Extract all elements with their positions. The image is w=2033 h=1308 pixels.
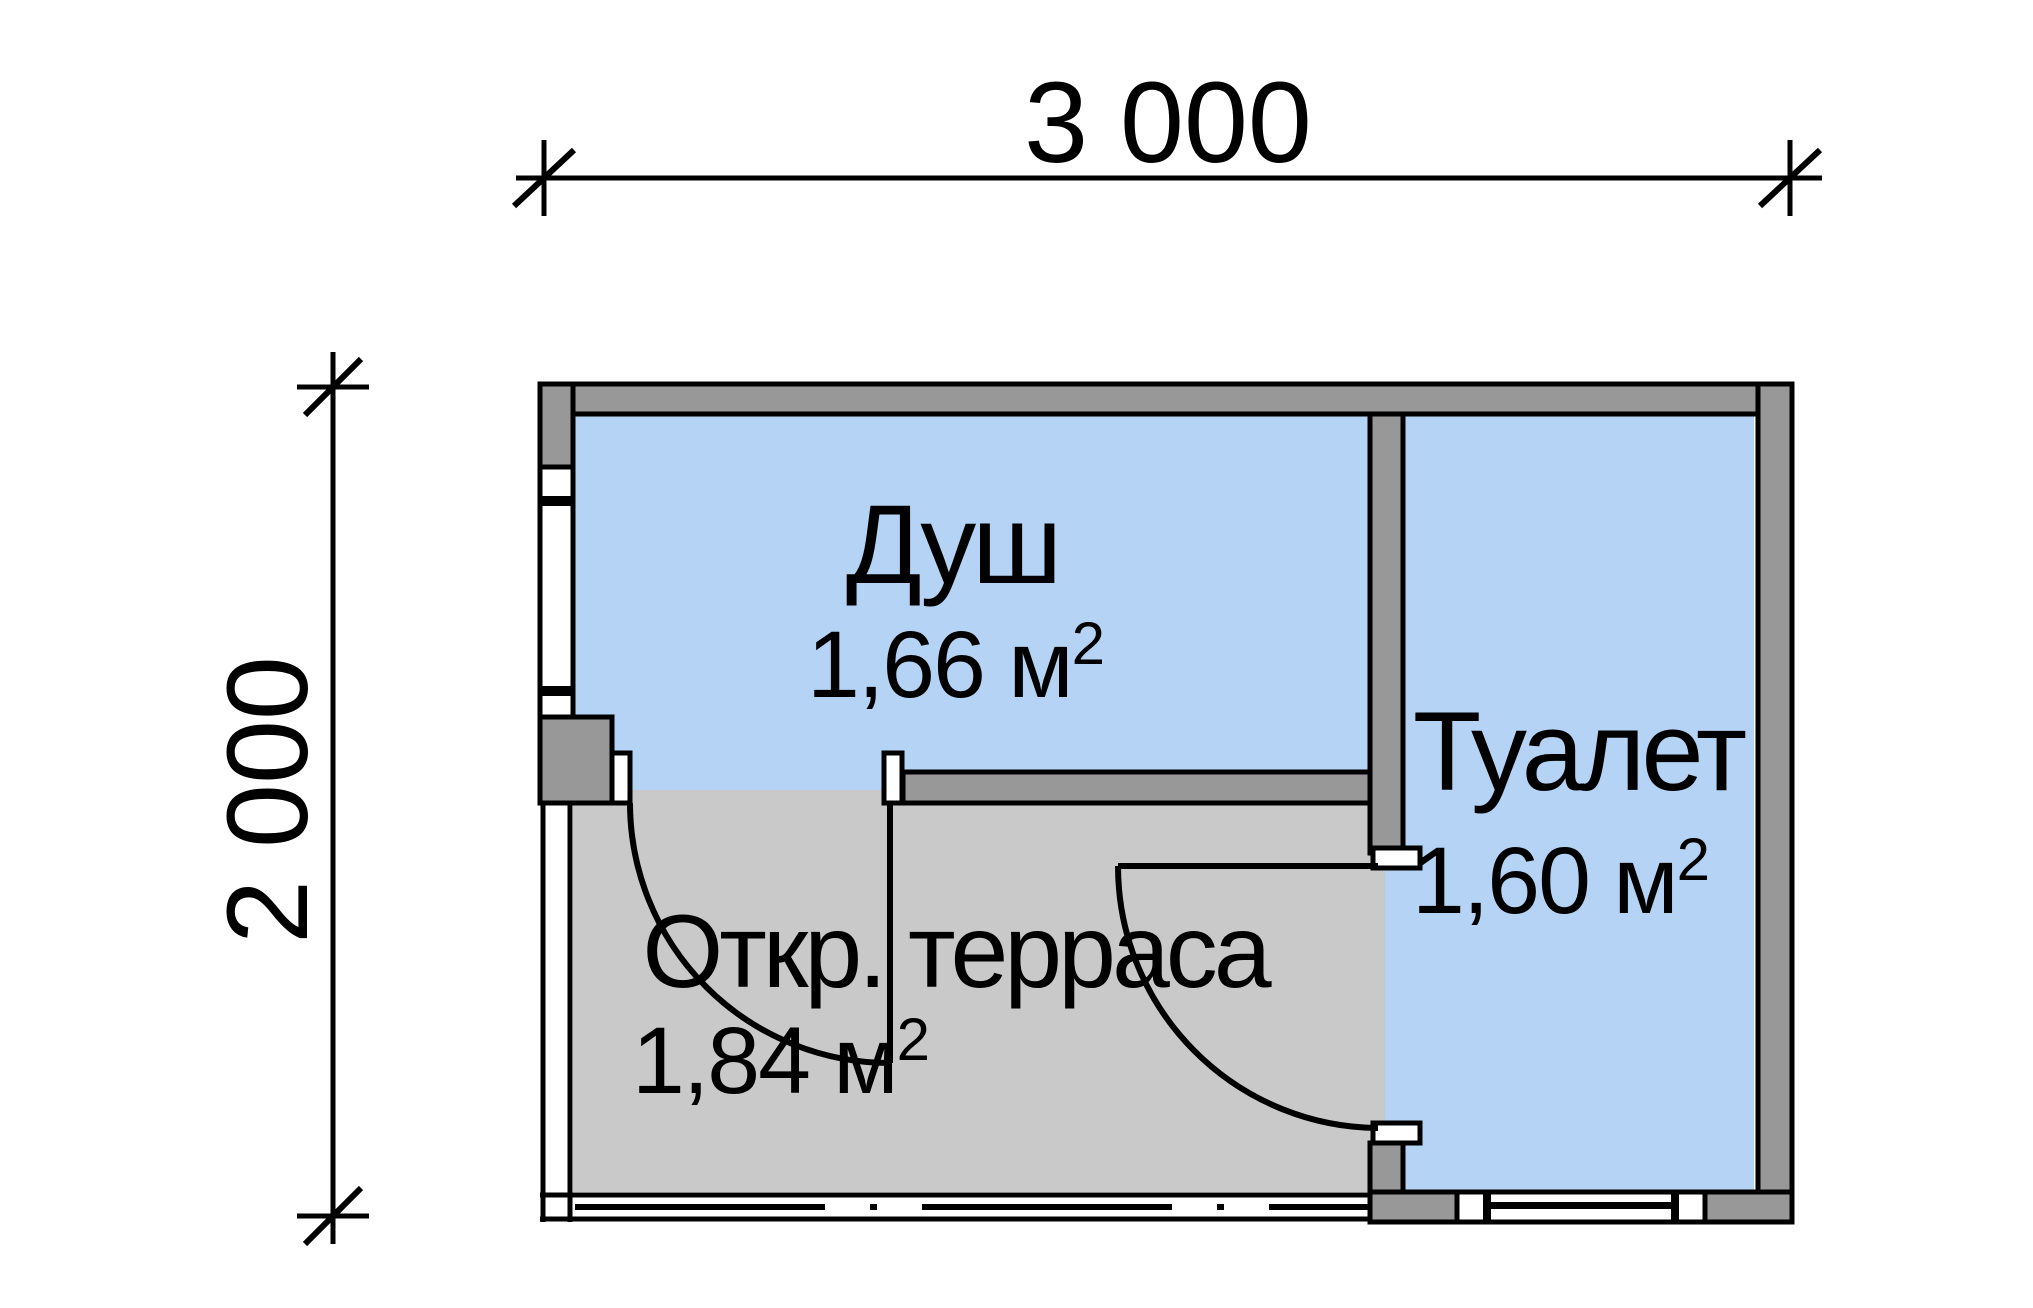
room-area-terrace: 1,84 м2 [632,1006,928,1114]
room-label-terrace: Откр. терраса [642,894,1271,1010]
top-wall [540,384,1792,414]
toilet-window-mullion-right [1671,1192,1679,1222]
interior-wall-shower-terrace [903,772,1370,803]
height-dimension-label: 2 000 [204,656,332,944]
floor-plan: 3 000 2 000 Душ 1,66 м2 Туалет 1,60 м2 О… [0,0,2033,1308]
room-area-shower-exponent: 2 [1072,610,1103,677]
room-area-toilet-exponent: 2 [1677,826,1708,893]
bottom-wall-right-segment [1705,1192,1792,1222]
toilet-window-glass-line [1491,1202,1671,1209]
room-area-terrace-exponent: 2 [897,1006,928,1073]
room-area-toilet: 1,60 м2 [1412,826,1708,934]
shower-doorway-floor-blue [630,772,884,790]
room-area-terrace-value: 1,84 м [632,1008,897,1114]
room-area-toilet-value: 1,60 м [1412,828,1677,934]
left-wall-pier [540,717,612,803]
shower-doorway-floor-gray [630,790,884,803]
shower-door-jamb-left [612,753,630,803]
room-area-shower: 1,66 м2 [807,610,1103,718]
toilet-door-jamb-bottom [1373,1123,1420,1143]
room-label-toilet: Туалет [1413,689,1746,814]
toilet-window-mullion-left [1483,1192,1491,1222]
toilet-partition-wall-lower [1370,1143,1403,1192]
room-label-shower: Душ [846,482,1058,607]
room-area-shower-value: 1,66 м [807,612,1072,718]
shower-door-jamb-right [884,753,902,803]
left-wall-window-mullion-top [540,496,573,506]
bottom-wall-left-segment [1370,1192,1457,1222]
toilet-partition-wall-upper [1370,414,1403,853]
right-wall [1758,384,1792,1222]
left-wall-window-mullion-bottom [540,686,573,696]
width-dimension-label: 3 000 [1024,59,1312,187]
left-wall-upper-segment [540,384,573,467]
